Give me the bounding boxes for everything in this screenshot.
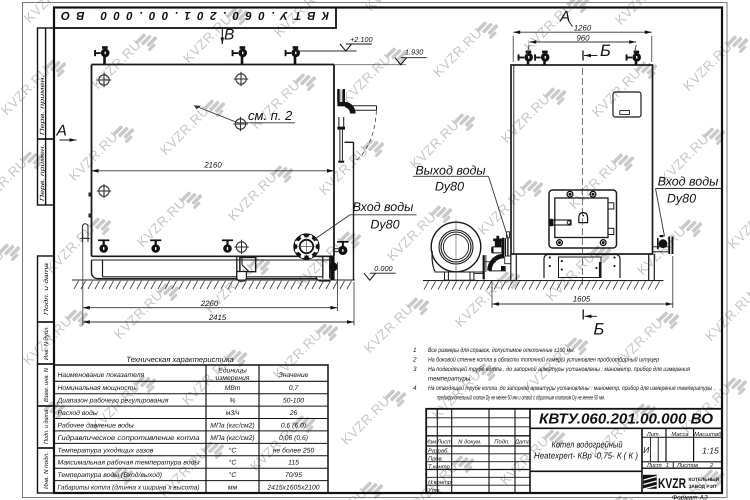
svg-text:Номинальная мощность: Номинальная мощность bbox=[58, 385, 138, 392]
svg-text:Рабочее давление воды: Рабочее давление воды bbox=[58, 422, 134, 429]
svg-text:Габариты котла (длинна х ширин: Габариты котла (длинна х ширина х высота… bbox=[58, 485, 200, 492]
svg-text:Масса: Масса bbox=[671, 432, 689, 438]
svg-text:Взам. инв. N: Взам. инв. N bbox=[43, 367, 50, 402]
svg-text:Dy80: Dy80 bbox=[667, 192, 696, 206]
svg-text:Диапазон рабочего регулировани: Диапазон рабочего регулирования bbox=[57, 398, 169, 405]
svg-text:Т.контр.: Т.контр. bbox=[428, 464, 451, 470]
svg-text:KVZR.RU: KVZR.RU bbox=[111, 287, 166, 342]
svg-text:Единицы: Единицы bbox=[218, 368, 246, 375]
svg-text:Температура уходящих газов: Температура уходящих газов bbox=[58, 447, 154, 454]
svg-text:KVZR.RU: KVZR.RU bbox=[66, 129, 121, 184]
svg-text:Б: Б bbox=[594, 321, 605, 339]
svg-text:KVZR.RU: KVZR.RU bbox=[225, 169, 280, 224]
svg-text:KVZR.RU: KVZR.RU bbox=[361, 301, 416, 356]
svg-text:KVZR.RU: KVZR.RU bbox=[134, 195, 189, 250]
svg-text:KVZR.RU: KVZR.RU bbox=[430, 25, 485, 80]
svg-text:Наименование показателя: Наименование показателя bbox=[58, 372, 145, 379]
svg-text:На отводящей трубе котла ,до з: На отводящей трубе котла ,до запорной ар… bbox=[428, 385, 715, 392]
svg-text:Гидравлическое сопротивление к: Гидравлическое сопротивление котла bbox=[58, 435, 200, 442]
svg-text:Расход воды: Расход воды bbox=[58, 410, 98, 417]
svg-text:0,7: 0,7 bbox=[289, 385, 299, 392]
svg-text:ЗАВОД РЭП: ЗАВОД РЭП bbox=[689, 484, 717, 489]
svg-text:Лит.: Лит. bbox=[646, 432, 661, 438]
svg-text:Лист: Лист bbox=[436, 440, 452, 446]
svg-text:KVZR.RU: KVZR.RU bbox=[248, 77, 303, 132]
svg-text:KVZR.RU: KVZR.RU bbox=[566, 157, 621, 212]
svg-text:2: 2 bbox=[412, 357, 417, 364]
svg-text:KVZR.RU: KVZR.RU bbox=[0, 155, 30, 210]
svg-text:Дата: Дата bbox=[514, 440, 531, 446]
svg-text:Подп. и дата: Подп. и дата bbox=[43, 262, 50, 315]
svg-text:50-100: 50-100 bbox=[283, 398, 304, 405]
svg-text:26: 26 bbox=[289, 410, 298, 417]
svg-text:предохранительный клапан Dу не: предохранительный клапан Dу не менее 50 … bbox=[437, 395, 605, 402]
svg-text:измерения: измерения bbox=[215, 375, 249, 382]
svg-text:А: А bbox=[56, 123, 67, 140]
svg-text:В: В bbox=[224, 27, 234, 44]
svg-text:Формат А3: Формат А3 bbox=[672, 495, 708, 500]
svg-text:Инв. N дубл.: Инв. N дубл. bbox=[43, 326, 50, 360]
svg-text:KVZR.RU: KVZR.RU bbox=[702, 289, 750, 344]
svg-text:°С: °С bbox=[229, 460, 237, 467]
svg-text:см. п. 2: см. п. 2 bbox=[248, 108, 293, 123]
svg-text:115: 115 bbox=[288, 460, 299, 467]
svg-text:Листов: Листов bbox=[676, 463, 698, 469]
svg-text:температуры.: температуры. bbox=[428, 376, 472, 383]
svg-text:Перв. примен.: Перв. примен. bbox=[39, 75, 46, 135]
svg-text:+2.100: +2.100 bbox=[350, 35, 373, 44]
svg-text:°С: °С bbox=[229, 472, 237, 479]
svg-text:Пров.: Пров. bbox=[428, 457, 443, 463]
svg-text:KVZR.RU: KVZR.RU bbox=[157, 103, 212, 158]
svg-text:Выход воды: Выход воды bbox=[415, 164, 485, 178]
svg-text:KVZR.RU: KVZR.RU bbox=[475, 183, 530, 238]
svg-text:Масштаб: Масштаб bbox=[694, 431, 722, 438]
svg-text:1.930: 1.930 bbox=[405, 47, 423, 56]
svg-text:2260: 2260 bbox=[200, 299, 219, 308]
svg-text:Вход воды: Вход воды bbox=[353, 200, 414, 214]
svg-text:KVZR.RU: KVZR.RU bbox=[339, 51, 394, 106]
svg-text:Heatexpert- КВр -0,75- К ( К ): Heatexpert- КВр -0,75- К ( К ) bbox=[534, 451, 638, 461]
svg-text:1:15: 1:15 bbox=[702, 446, 719, 456]
svg-text:0,6 (6,0): 0,6 (6,0) bbox=[281, 422, 306, 429]
svg-text:°С: °С bbox=[229, 447, 237, 454]
svg-text:КОТЕЛЬНЫЙ: КОТЕЛЬНЫЙ bbox=[689, 476, 720, 482]
svg-text:Подп.: Подп. bbox=[494, 439, 509, 446]
svg-text:МПа (кгс/см2): МПа (кгс/см2) bbox=[210, 422, 254, 429]
svg-text:не более 250: не более 250 bbox=[273, 447, 315, 454]
svg-text:1260: 1260 bbox=[574, 24, 592, 33]
svg-text:KVZR.RU: KVZR.RU bbox=[634, 223, 689, 278]
svg-text:1605: 1605 bbox=[573, 295, 591, 304]
svg-text:м3/ч: м3/ч bbox=[226, 410, 240, 417]
svg-text:Перв. примен.: Перв. примен. bbox=[39, 144, 46, 201]
svg-text:Лист: Лист bbox=[646, 463, 662, 469]
svg-text:КВТУ.060.201.00.000 ВО: КВТУ.060.201.00.000 ВО bbox=[539, 412, 714, 428]
svg-text:KVZR: KVZR bbox=[658, 475, 686, 491]
svg-text:Утв.: Утв. bbox=[427, 488, 441, 494]
svg-text:Вход воды: Вход воды bbox=[658, 175, 719, 189]
svg-text:Б: Б bbox=[600, 42, 611, 60]
svg-text:2415: 2415 bbox=[208, 313, 227, 322]
svg-text:2415х1605х2100: 2415х1605х2100 bbox=[266, 485, 319, 492]
svg-text:А: А bbox=[559, 9, 570, 26]
svg-text:МВт: МВт bbox=[225, 385, 241, 392]
svg-text:На подводящей трубе котла ,: На подводящей трубе котла , до запорной … bbox=[428, 366, 691, 373]
svg-text:Подп. и дата: Подп. и дата bbox=[43, 409, 50, 444]
svg-text:КВТУ.060.201.00.000 ВО: КВТУ.060.201.00.000 ВО bbox=[61, 9, 329, 21]
svg-text:Все размеры для справок, допус: Все размеры для справок, допустимое откл… bbox=[428, 347, 575, 354]
svg-text:Максимальная рабочая температу: Максимальная рабочая температура воды bbox=[58, 460, 200, 467]
svg-text:МПа (кгс/см2): МПа (кгс/см2) bbox=[210, 435, 254, 442]
svg-text:Котел водогрейный: Котел водогрейный bbox=[552, 440, 623, 450]
svg-text:N докум.: N докум. bbox=[458, 439, 481, 446]
svg-text:Инв. N подл.: Инв. N подл. bbox=[43, 452, 50, 489]
svg-text:Dy80: Dy80 bbox=[435, 180, 464, 194]
svg-text:Значение: Значение bbox=[279, 372, 309, 379]
svg-text:2160: 2160 bbox=[203, 160, 222, 169]
svg-text:1: 1 bbox=[413, 347, 417, 354]
svg-text:Температура воды (Вход/выход): Температура воды (Вход/выход) bbox=[58, 472, 163, 479]
svg-text:KVZR.RU: KVZR.RU bbox=[43, 221, 98, 276]
svg-text:960: 960 bbox=[576, 33, 590, 42]
svg-text:%: % bbox=[229, 398, 235, 405]
svg-text:KVZR.RU: KVZR.RU bbox=[156, 445, 211, 500]
svg-text:70/95: 70/95 bbox=[285, 472, 302, 479]
svg-text:Разраб.: Разраб. bbox=[428, 448, 449, 455]
svg-text:KVZR.RU: KVZR.RU bbox=[338, 393, 393, 448]
svg-text:Н.контр.: Н.контр. bbox=[428, 480, 453, 486]
svg-text:1: 1 bbox=[666, 463, 669, 469]
svg-text:KVZR.RU: KVZR.RU bbox=[498, 91, 553, 146]
svg-text:Техническая характеристика: Техническая характеристика bbox=[126, 355, 234, 364]
svg-text:0.000: 0.000 bbox=[374, 264, 392, 273]
svg-text:KVZR.RU: KVZR.RU bbox=[703, 0, 750, 2]
svg-text:Изм.: Изм. bbox=[426, 440, 438, 446]
svg-text:3: 3 bbox=[413, 366, 417, 373]
svg-text:Dy80: Dy80 bbox=[370, 218, 399, 232]
svg-text:мм: мм bbox=[228, 485, 238, 492]
svg-text:На боковой стенке котла в обла: На боковой стенке котла в области топочн… bbox=[428, 357, 659, 364]
svg-text:4: 4 bbox=[413, 385, 417, 392]
svg-text:0,06 (0,6): 0,06 (0,6) bbox=[279, 435, 308, 442]
svg-text:KVZR.RU: KVZR.RU bbox=[612, 0, 667, 28]
svg-text:И: И bbox=[643, 445, 650, 455]
svg-text:KVZR.RU: KVZR.RU bbox=[725, 197, 750, 252]
